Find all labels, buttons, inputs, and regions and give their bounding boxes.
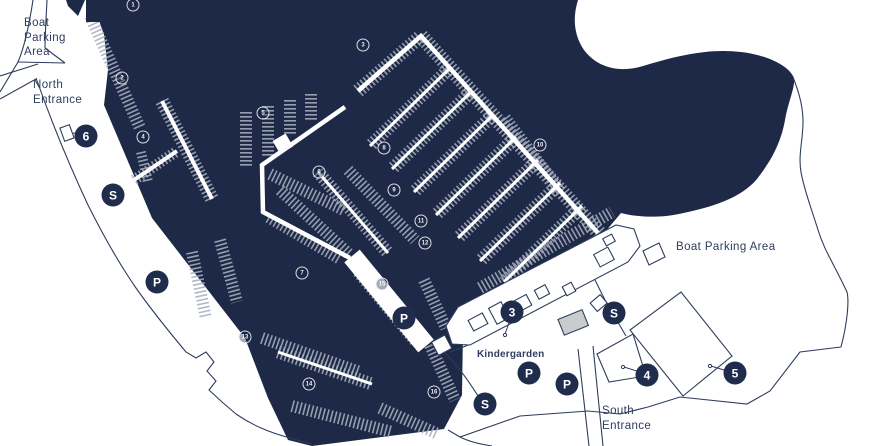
label-boat-parking-area-e: Boat Parking Area [676,240,776,255]
marina-map: Boat Parking Area North Entrance Boat Pa… [0,0,890,446]
pier-number-marker: 8 [378,142,391,155]
road-east-coast [793,77,848,347]
marker-s-east: S [603,302,626,325]
marker-3: 3 [501,301,524,324]
label-boat-parking-area-nw: Boat Parking Area [24,16,66,60]
marker-p-kindergarden: P [518,362,541,385]
label-kindergarden: Kindergarden [477,349,544,362]
marker-s-south: S [474,393,497,416]
pier-number-marker: 11 [415,215,428,228]
pier-number-marker: 3 [357,39,370,52]
pier-number-marker: 6 [313,166,326,179]
pier-number-marker: 13 [239,331,252,344]
pier-number-marker: 16 [428,386,441,399]
pier-number-marker: 12 [419,237,432,250]
building-gray [558,310,588,336]
label-north-entrance: North Entrance [33,78,82,107]
marker-s-north: S [102,184,125,207]
label-south-entrance: South Entrance [602,404,651,433]
marker-4: 4 [636,364,659,387]
map-canvas [0,0,890,446]
pier-number-marker: 10 [534,139,547,152]
marker-6: 6 [75,125,98,148]
pier-number-marker: 4 [137,131,150,144]
pier-number-marker: 14 [303,378,316,391]
kiosk-north [60,125,74,142]
marker-5: 5 [724,362,747,385]
marker-p-pier: P [393,307,416,330]
marker-p-west: P [146,271,169,294]
marker-p-south: P [556,373,579,396]
pier-number-marker: 15 [376,278,389,291]
pier-number-marker: 9 [388,184,401,197]
pier-number-marker: 5 [257,107,270,120]
pier-number-marker: 7 [296,267,309,280]
pier-number-marker: 2 [116,72,129,85]
